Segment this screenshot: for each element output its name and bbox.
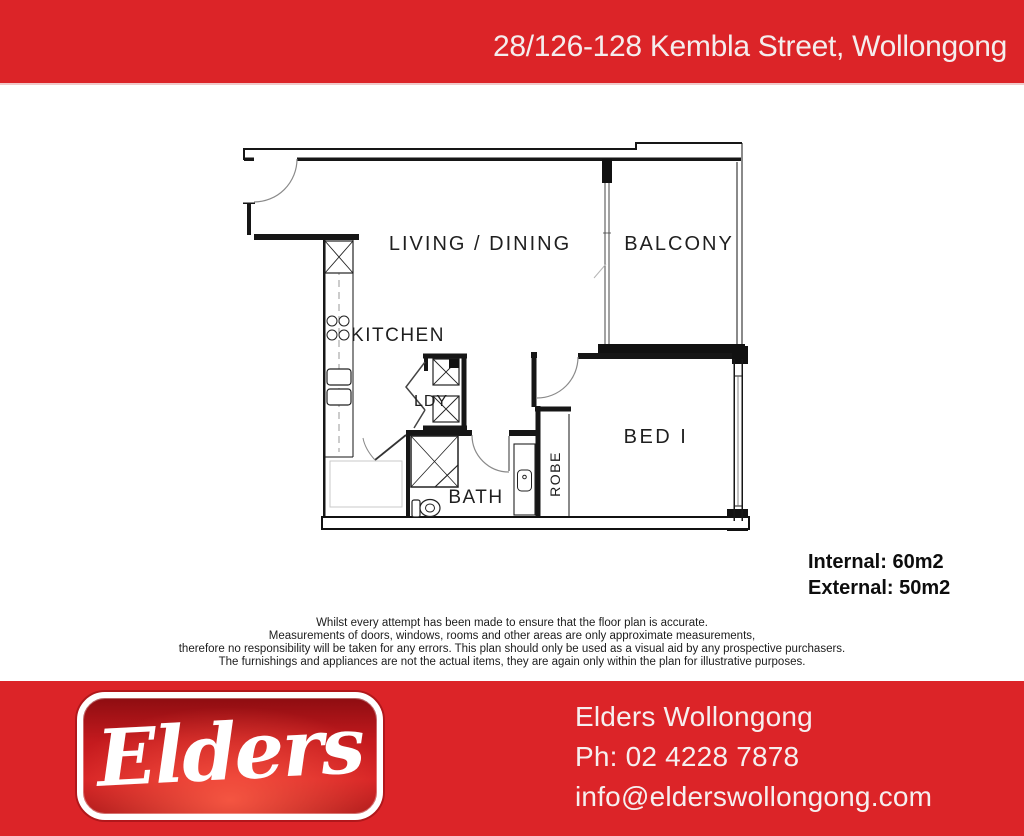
disclaimer-line: The furnishings and appliances are not t…	[0, 656, 1024, 669]
washer-icon	[433, 359, 459, 385]
contact-block: Elders Wollongong Ph: 02 4228 7878 info@…	[575, 697, 932, 817]
disclaimer-line: Whilst every attempt has been made to en…	[0, 617, 1024, 630]
floor-plan: LIVING / DINING BALCONY KITCHEN LDY BATH…	[228, 138, 752, 542]
plan-walls	[243, 143, 749, 531]
disclaimer-line: therefore no responsibility will be take…	[0, 643, 1024, 656]
vanity-icon	[514, 444, 535, 515]
bed-door-arc	[537, 357, 578, 398]
elders-logo-text: Elders	[94, 700, 365, 805]
bath-door-arc	[472, 435, 509, 472]
laundry-fixtures	[433, 359, 459, 422]
room-label-kitchen: KITCHEN	[351, 325, 445, 346]
disclaimer: Whilst every attempt has been made to en…	[0, 617, 1024, 669]
room-label-laundry: LDY	[414, 393, 448, 410]
kitchen-fixtures	[325, 241, 402, 507]
address-banner: 28/126-128 Kembla Street, Wollongong	[0, 0, 1024, 85]
elders-logo: Elders	[77, 692, 383, 820]
disclaimer-line: Measurements of doors, windows, rooms an…	[0, 630, 1024, 643]
hall-door-leaf	[375, 435, 406, 460]
room-label-living: LIVING / DINING	[389, 233, 571, 255]
sink-icon	[327, 369, 351, 405]
room-label-bed: BED I	[624, 426, 689, 448]
cabinet-outline	[330, 461, 402, 507]
internal-area: Internal: 60m2	[808, 549, 1008, 575]
external-area: External: 50m2	[808, 575, 1008, 601]
shower-icon	[411, 436, 458, 487]
cooktop-icon	[327, 316, 349, 340]
room-label-robe: ROBE	[547, 451, 563, 497]
room-label-balcony: BALCONY	[624, 233, 734, 255]
flyer-page: 28/126-128 Kembla Street, Wollongong	[0, 0, 1024, 836]
email-address: info@elderswollongong.com	[575, 777, 932, 817]
room-label-bath: BATH	[448, 487, 503, 508]
area-summary: Internal: 60m2 External: 50m2	[808, 549, 1008, 601]
office-name: Elders Wollongong	[575, 697, 932, 737]
toilet-icon	[412, 500, 440, 518]
door-swings	[254, 159, 606, 472]
entry-door-arc	[254, 159, 297, 202]
footer-banner: Elders Elders Wollongong Ph: 02 4228 787…	[0, 681, 1024, 836]
phone-number: Ph: 02 4228 7878	[575, 737, 932, 777]
property-address: 28/126-128 Kembla Street, Wollongong	[493, 30, 1007, 64]
